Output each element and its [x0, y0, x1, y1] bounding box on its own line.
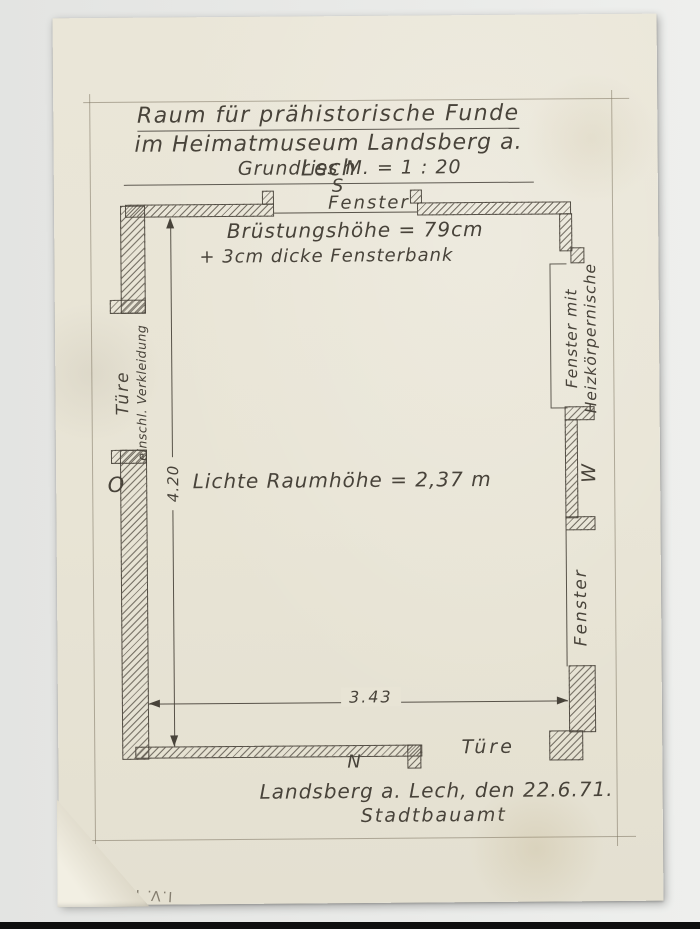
room-height-note: Lichte Raumhöhe = 2,37 m [193, 467, 492, 493]
scan-background: Raum für prähistorische Funde im Heimatm… [0, 0, 700, 929]
wall-right-foot [549, 730, 583, 760]
title-line-1: Raum für prähistorische Funde [137, 101, 520, 132]
dimension-arrow-left [149, 700, 160, 708]
dimension-arrow-up [166, 217, 174, 228]
dimension-width-label: 3.43 [341, 687, 401, 706]
frame-line-right [611, 90, 618, 846]
wall-right-middle [565, 419, 579, 518]
window-label-top: Fenster [328, 192, 410, 214]
dimension-arrow-right [557, 696, 568, 704]
place-date-line: Landsberg a. Lech, den 22.6.71. [260, 777, 614, 804]
compass-north: N [347, 751, 361, 772]
office-line: Stadtbauamt [361, 804, 507, 827]
bottom-door-label: Türe [462, 736, 515, 758]
parapet-note-line-2: + 3cm dicke Fensterbank [199, 245, 453, 268]
wall-right-upper-step [570, 247, 584, 263]
right-window-label: Fenster [571, 568, 592, 646]
left-door-label: Türe einschl. Verkleidung [112, 325, 150, 461]
dimension-height-label: 4.20 [164, 457, 182, 511]
scan-edge-strip [0, 922, 700, 929]
scale-label: Grundriss M. = 1 : 20 [238, 156, 462, 180]
left-door-label-line-2: einschl. Verkleidung [134, 325, 151, 461]
wall-bottom-end-cap [407, 745, 421, 769]
right-window-niche-label: Fenster mit Heizkörpernische [562, 263, 602, 414]
wall-top-right [417, 201, 571, 215]
right-window-niche-line-1: Fenster mit [562, 263, 583, 413]
dimension-arrow-down [170, 735, 178, 746]
wall-top-left [125, 204, 274, 218]
frame-line-bottom [87, 836, 636, 841]
left-door-label-line-1: Türe [112, 325, 134, 461]
paper-sheet: Raum für prähistorische Funde im Heimatm… [53, 14, 664, 906]
wall-right-middle-cap-bottom [565, 516, 595, 530]
window-jamb-right [410, 189, 422, 203]
wall-right-lower [569, 665, 597, 732]
wall-bottom [135, 745, 422, 759]
wall-right-upper [559, 213, 572, 251]
window-line-right [566, 530, 568, 666]
paper-corner-fold [57, 799, 150, 908]
parapet-note-line-1: Brüstungshöhe = 79cm [227, 217, 484, 243]
frame-line-left [89, 94, 96, 844]
compass-east: O [108, 473, 125, 497]
right-window-niche-line-2: Heizkörpernische [581, 263, 602, 413]
compass-west: W [578, 463, 600, 482]
wall-left-upper-cap [110, 300, 146, 314]
wall-left-upper [120, 206, 146, 314]
window-jamb-left [262, 191, 274, 205]
